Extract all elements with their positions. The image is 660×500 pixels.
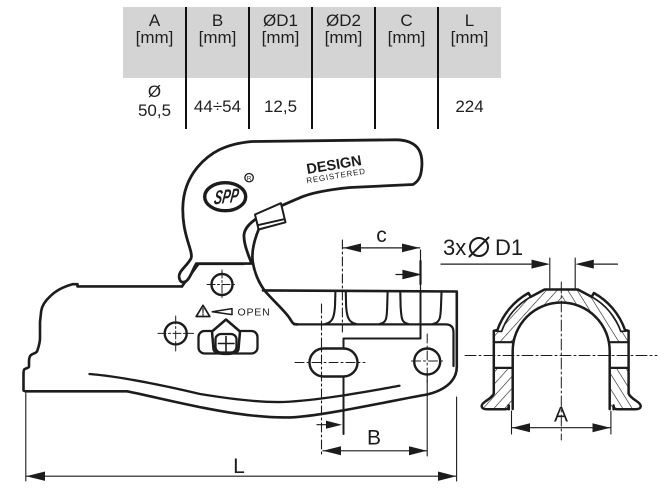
svg-text:L: L (233, 455, 245, 478)
svg-text:c: c (376, 224, 387, 247)
svg-text:SPP: SPP (213, 184, 241, 209)
svg-text:B: B (367, 427, 381, 450)
svg-text:OPEN: OPEN (238, 306, 271, 318)
svg-text:A: A (554, 404, 568, 427)
svg-text:D1: D1 (495, 235, 523, 260)
svg-text:3x: 3x (443, 235, 466, 260)
svg-text:R: R (247, 176, 252, 183)
